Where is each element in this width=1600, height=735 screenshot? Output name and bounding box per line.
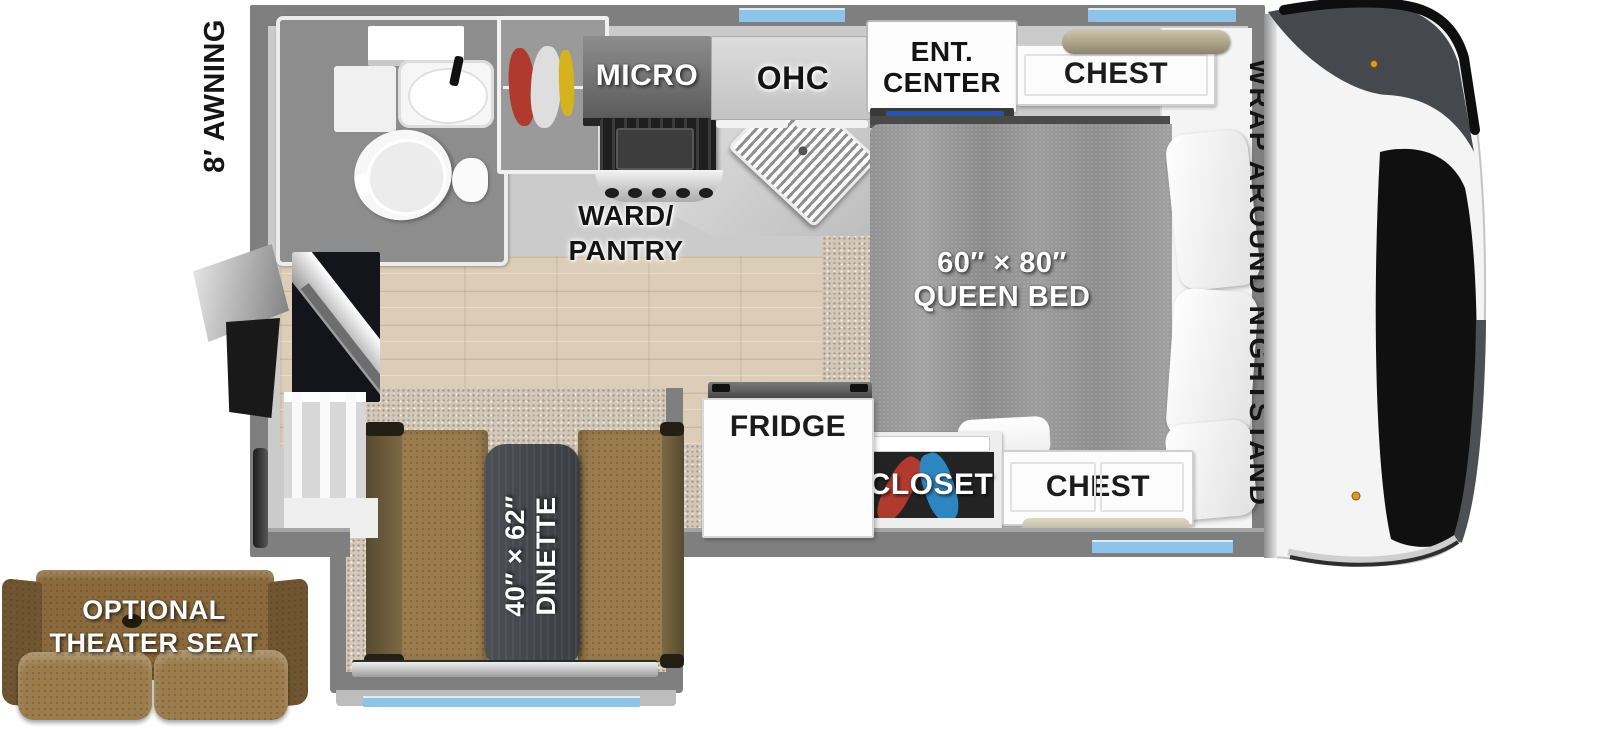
chest-bottom: CHEST xyxy=(1002,450,1194,526)
marker-light-icon xyxy=(1352,492,1360,500)
ohc-ledge xyxy=(716,120,788,128)
stove-knob-icon xyxy=(605,188,619,198)
dinette-label: 40″ × 62″ DINETTE xyxy=(500,456,564,656)
hanging-clothes-white xyxy=(529,45,563,128)
stove xyxy=(600,118,716,174)
ohc-ledge xyxy=(796,120,868,128)
slide-step-trim xyxy=(352,660,658,677)
window-strip xyxy=(363,696,640,707)
grab-handle-icon xyxy=(253,448,268,548)
theater-seat-label: OPTIONAL THEATER SEAT xyxy=(10,594,298,660)
window-strip xyxy=(739,8,845,22)
ent-center-label: ENT. xyxy=(868,36,1016,67)
dinette-bench-left xyxy=(402,430,488,662)
bed-label: 60″ × 80″ QUEEN BED xyxy=(862,246,1142,314)
bathroom-sink xyxy=(398,60,494,128)
dinette-bench-right-back xyxy=(662,426,684,666)
entry-doorway xyxy=(292,252,380,402)
theater-seat-cushion xyxy=(18,652,152,720)
fridge: FRIDGE xyxy=(702,398,874,538)
stove-knob-icon xyxy=(652,188,666,198)
dinette-bench-left-back xyxy=(366,426,402,666)
entry-door-panel xyxy=(226,318,280,418)
ent-center: ENT. CENTER xyxy=(866,20,1018,114)
closet-label: CLOSET xyxy=(860,468,1002,502)
front-cap xyxy=(1262,0,1494,580)
micro-label: MICRO xyxy=(596,59,699,92)
ward-pantry-label: WARD/ PANTRY xyxy=(540,198,712,268)
window-strip xyxy=(1092,540,1233,553)
awning-label: 8′ AWNING xyxy=(196,5,234,187)
stove-knob-icon xyxy=(628,188,642,198)
sink-drain-icon xyxy=(797,145,810,158)
fridge-label: FRIDGE xyxy=(730,410,846,443)
toilet-paper-holder xyxy=(452,158,488,202)
micro-cabinet: MICRO xyxy=(583,36,711,126)
closet: CLOSET xyxy=(860,432,1002,532)
ohc-label: OHC xyxy=(757,60,830,96)
window-strip xyxy=(1088,8,1236,22)
dinette-bench-right xyxy=(578,430,664,662)
ohc-cabinet: OHC xyxy=(711,36,875,120)
theater-seat-cushion xyxy=(154,650,288,720)
toilet xyxy=(345,119,462,230)
theater-seat: OPTIONAL THEATER SEAT xyxy=(2,566,308,732)
bathroom xyxy=(276,16,508,266)
overhead-shelf xyxy=(1062,30,1230,54)
stove-knob-icon xyxy=(676,188,690,198)
bathroom-counter xyxy=(334,66,396,132)
windshield xyxy=(1376,149,1477,547)
marker-light-icon xyxy=(1371,61,1378,68)
floor-plan: 8′ AWNING MICRO xyxy=(0,0,1600,735)
hanging-clothes-yellow xyxy=(558,50,575,116)
bottom-wall-left xyxy=(258,528,350,557)
